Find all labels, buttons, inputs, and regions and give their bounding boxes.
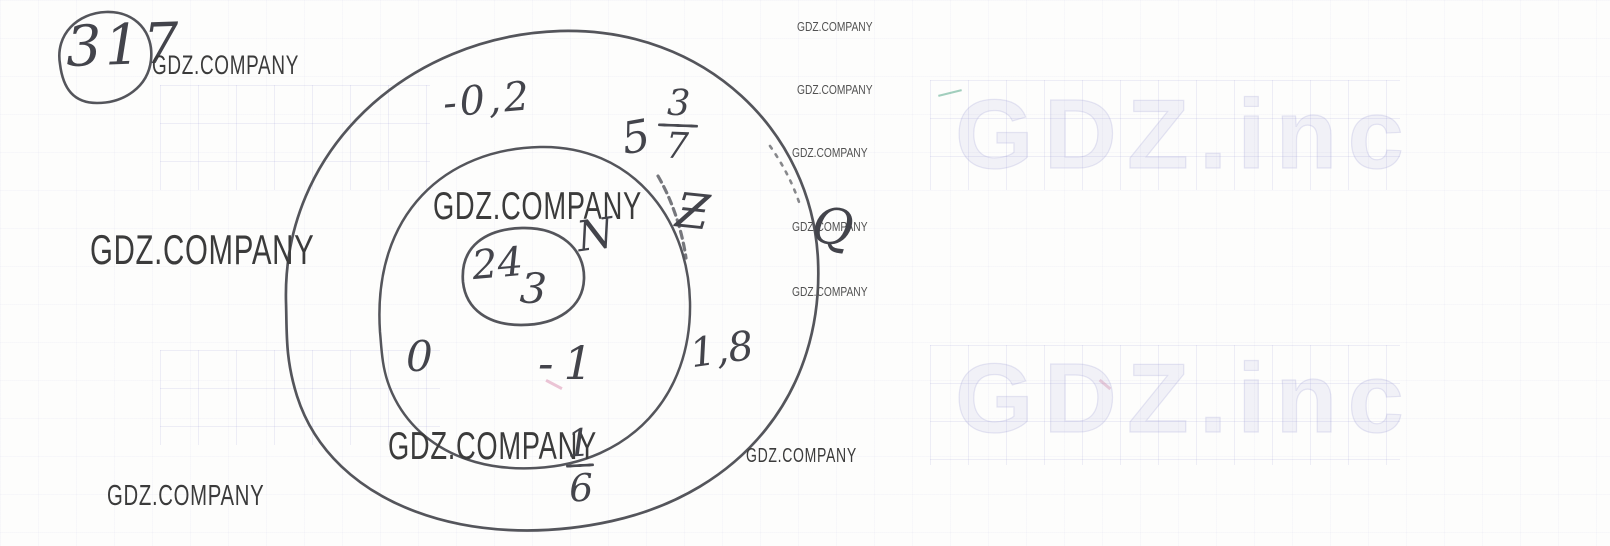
element-rational-1-8: 1,8: [688, 326, 757, 374]
element-rational-frac-1-6: 1 6: [564, 423, 596, 507]
element-rational-mixed-5-3-7: 5 3 7: [622, 86, 698, 165]
element-rational-neg-0-2: -0,2: [441, 76, 533, 124]
element-integer-neg1: -1: [538, 340, 603, 386]
fraction-denominator: 6: [568, 468, 594, 507]
brand-watermark: GDZ.COMPANY: [792, 146, 868, 160]
fraction-denominator: 7: [665, 129, 689, 166]
fraction-numerator: 3: [667, 86, 691, 123]
brand-watermark: GDZ.COMPANY: [107, 480, 264, 513]
set-symbol-integer: Ƶ: [674, 186, 712, 237]
brand-watermark: GDZ.COMPANY: [152, 50, 299, 81]
brand-watermark: GDZ.COMPANY: [797, 83, 873, 97]
scanned-notebook-page: GDZ.inc GDZ.inc 317 GDZ.COMPANY GDZ.COMP…: [0, 0, 1610, 546]
brand-watermark: GDZ.COMPANY: [746, 445, 857, 468]
element-natural-24: 24: [470, 242, 524, 286]
brand-watermark: GDZ.COMPANY: [797, 20, 873, 34]
mixed-fraction: 3 7: [657, 85, 700, 165]
set-symbol-rational: Q: [809, 199, 857, 254]
brand-watermark: GDZ.COMPANY: [792, 285, 868, 299]
set-symbol-natural: N: [574, 212, 616, 259]
element-natural-3: 3: [519, 267, 548, 310]
brand-watermark: GDZ.COMPANY: [90, 226, 314, 274]
fraction-numerator: 1: [566, 423, 592, 462]
mixed-whole: 5: [618, 114, 653, 162]
element-integer-0: 0: [406, 336, 433, 378]
